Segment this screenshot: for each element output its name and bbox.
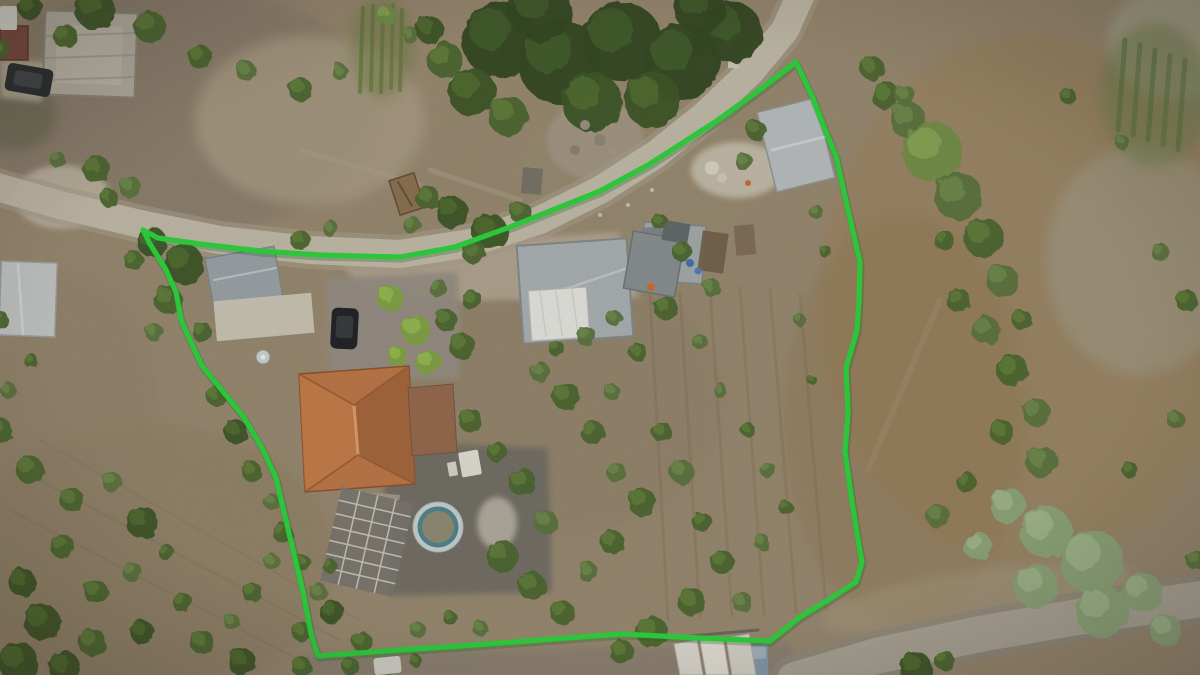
aerial-photo-frame <box>0 0 1200 675</box>
vignette-overlay <box>0 0 1200 675</box>
aerial-photo <box>0 0 1200 675</box>
